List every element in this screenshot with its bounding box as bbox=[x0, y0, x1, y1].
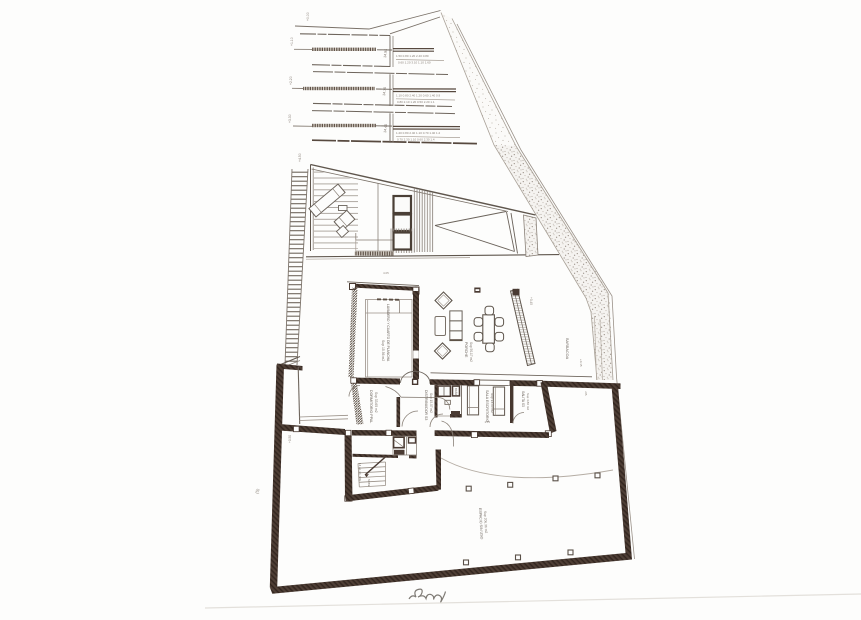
svg-text:Sup 50.17 m2: Sup 50.17 m2 bbox=[469, 342, 473, 362]
svg-text:+0.50: +0.50 bbox=[288, 435, 292, 443]
svg-text:Sup 15.56 m2: Sup 15.56 m2 bbox=[381, 340, 385, 361]
svg-text:1.50 0.80 1.20 2.40 0.80: 1.50 0.80 1.20 2.40 0.80 bbox=[396, 54, 429, 58]
svg-text:Sup 13.05 m2: Sup 13.05 m2 bbox=[490, 393, 494, 413]
svg-text:+1.10: +1.10 bbox=[290, 37, 294, 46]
svg-text:0.60 1.20 3.10 1.10 1.60: 0.60 1.20 3.10 1.10 1.60 bbox=[398, 61, 431, 65]
svg-text:SALITA S3: SALITA S3 bbox=[521, 391, 525, 407]
svg-text:LAVADERO Y CUARTO DE PLANCHA: LAVADERO Y CUARTO DE PLANCHA bbox=[386, 304, 390, 362]
svg-text:SUBE: SUBE bbox=[367, 479, 371, 487]
svg-text:1.10 0.80 2.40 1.20 0.60 1.40: 1.10 0.80 2.40 1.20 0.60 1.40 0.9 bbox=[396, 94, 441, 98]
svg-text:+0.00: +0.00 bbox=[306, 12, 310, 21]
svg-text:4.05: 4.05 bbox=[383, 271, 389, 275]
svg-text:0.80 2.10 1.20 0.50 2.20 1.1: 0.80 2.10 1.20 0.50 2.20 1.1 bbox=[397, 100, 435, 104]
svg-text:DISTRIBUIDOR S3: DISTRIBUIDOR S3 bbox=[424, 390, 428, 420]
svg-text:J.B.: J.B. bbox=[584, 391, 588, 396]
svg-text:SALA ESCRITORIO: SALA ESCRITORIO bbox=[485, 390, 489, 422]
svg-text:+3.30: +3.30 bbox=[288, 114, 292, 123]
svg-text:14 AL 21 (18): 14 AL 21 (18) bbox=[358, 463, 362, 481]
svg-text:+2.20: +2.20 bbox=[289, 76, 293, 85]
svg-text:BAÑO: BAÑO bbox=[454, 388, 459, 397]
svg-text:Sup 15.07 m2: Sup 15.07 m2 bbox=[429, 393, 433, 413]
svg-text:0.70 2.30 1.10 0.60 2.30 1.4: 0.70 2.30 1.10 0.60 2.30 1.4 bbox=[397, 137, 435, 141]
svg-text:PORCHE: PORCHE bbox=[464, 342, 468, 358]
svg-text:1.20 0.80 2.40 1.10 0.70 1.40: 1.20 0.80 2.40 1.10 0.70 1.40 1.2 bbox=[396, 131, 441, 135]
svg-text:BARBACOA: BARBACOA bbox=[565, 338, 569, 360]
svg-text:Sup 33.65 m2: Sup 33.65 m2 bbox=[374, 392, 378, 413]
svg-text:DORMITORIO PPAL: DORMITORIO PPAL bbox=[369, 390, 373, 423]
svg-text:+0.45: +0.45 bbox=[529, 297, 533, 305]
svg-text:+0.15: +0.15 bbox=[579, 359, 583, 367]
svg-text:+4.50: +4.50 bbox=[298, 153, 302, 162]
svg-text:Sup 4.86 m2: Sup 4.86 m2 bbox=[526, 393, 530, 410]
